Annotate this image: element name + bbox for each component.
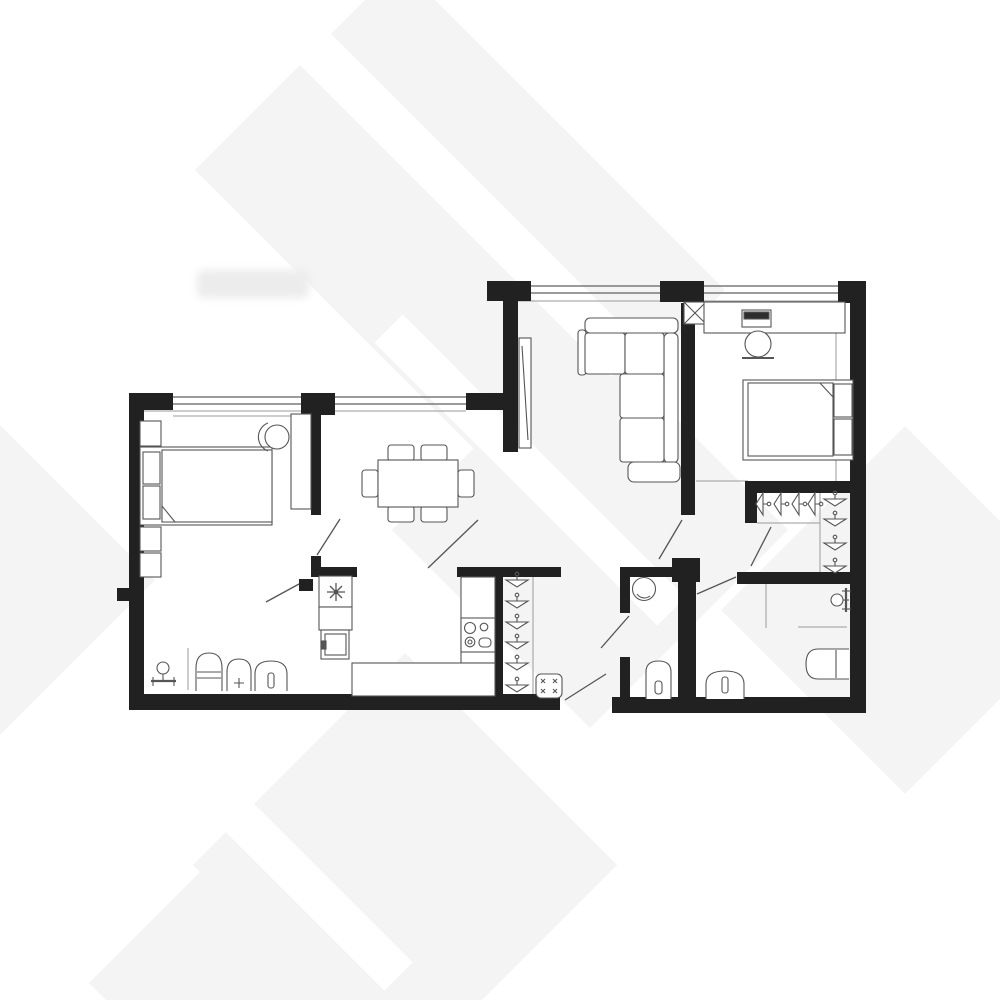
stove-body	[461, 618, 495, 652]
toilet-flush	[655, 681, 662, 694]
desk-chair	[745, 331, 771, 357]
basin-tap	[722, 677, 728, 693]
dining-table	[378, 460, 458, 507]
bed-mattress	[162, 450, 272, 522]
wall	[503, 301, 518, 452]
wall-nub	[117, 588, 131, 601]
wall-bottom-right	[612, 697, 866, 713]
wall-bedroom-divider	[311, 407, 321, 515]
dining-chair	[388, 506, 414, 522]
wall	[466, 393, 518, 410]
wall-central	[681, 303, 695, 515]
bed-pillow	[143, 452, 160, 484]
sofa-seat	[625, 333, 664, 374]
wall-kitchen-top	[457, 567, 561, 577]
sofa-seat	[620, 418, 664, 462]
wall-bathroom-top	[737, 572, 851, 584]
dining-chair	[421, 445, 447, 461]
washing-machine	[536, 674, 562, 698]
mixer-knob	[831, 594, 843, 606]
kitchen-cabinet	[319, 607, 352, 630]
wardrobe	[291, 414, 311, 509]
wall-corner-block	[672, 558, 700, 582]
bed-mattress	[748, 383, 833, 456]
mixer-knob	[157, 662, 169, 674]
floor-plan-stage	[0, 0, 1000, 1000]
sofa-ottoman	[628, 462, 680, 482]
laptop-screen	[744, 312, 769, 319]
stove-burner	[479, 638, 491, 647]
round-chair	[265, 425, 289, 449]
sofa-seat	[620, 374, 664, 418]
wall	[487, 281, 531, 301]
dining-chair	[421, 506, 447, 522]
dresser	[140, 553, 161, 577]
bathtub	[806, 649, 849, 679]
sofa-back	[664, 333, 678, 463]
stove	[461, 618, 495, 652]
watermark-text-blob	[197, 270, 309, 298]
wall	[660, 281, 704, 302]
dresser	[140, 527, 161, 551]
wall-wc-left	[620, 657, 630, 700]
sofa-back	[585, 318, 678, 333]
bed-pillow	[834, 419, 852, 455]
stove-burner	[465, 623, 476, 634]
stove-burner	[480, 623, 488, 631]
desk	[704, 302, 845, 333]
bed-pillow	[143, 486, 160, 519]
ventilation-shaft	[684, 302, 706, 324]
dining-chair	[388, 445, 414, 461]
wall-stub	[299, 579, 313, 591]
bed-pillow	[834, 384, 852, 417]
wall-central-lower	[678, 582, 696, 700]
kitchen-counter	[352, 663, 495, 696]
sofa-seat	[585, 333, 625, 374]
dining-chair	[458, 470, 474, 497]
appliance-handle	[321, 641, 326, 649]
round-sink	[633, 578, 656, 601]
kitchen-appliance-door	[325, 634, 346, 655]
basin-tap	[268, 673, 274, 688]
dining-chair	[362, 470, 378, 497]
wall-right	[850, 281, 866, 713]
wall-wc-top	[620, 567, 676, 577]
washer-body	[536, 674, 562, 698]
wall-wc-left	[620, 577, 630, 613]
nightstand	[140, 421, 161, 446]
wall-closet-stub	[745, 481, 757, 523]
floor-plan-drawing	[0, 0, 1000, 1000]
stove-burner-inner	[468, 640, 472, 644]
